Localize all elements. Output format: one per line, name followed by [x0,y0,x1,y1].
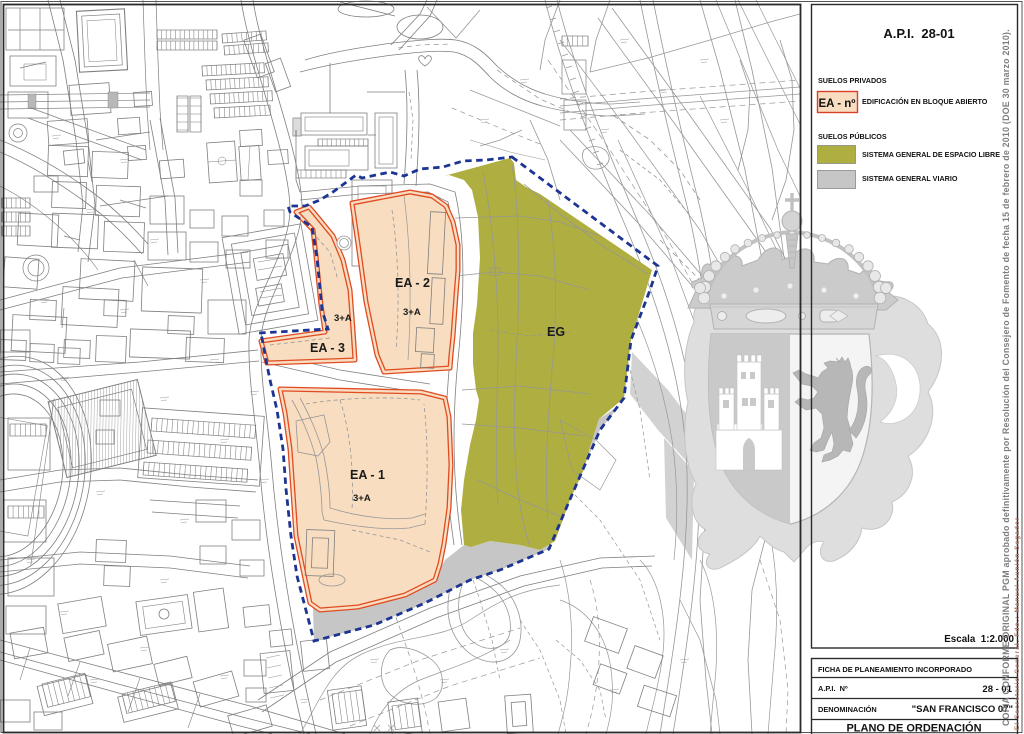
svg-text:3+A: 3+A [353,493,371,504]
svg-text:EDIFICACIÓN EN BLOQUE ABIERTO: EDIFICACIÓN EN BLOQUE ABIERTO [862,97,988,106]
svg-text:El Secretario General. Fdo.: M: El Secretario General. Fdo.: Manuel Auni… [1014,517,1021,731]
svg-text:3+A: 3+A [403,307,421,318]
svg-text:FICHA DE PLANEAMIENTO INCORPOR: FICHA DE PLANEAMIENTO INCORPORADO [818,665,972,674]
svg-text:EG: EG [547,325,565,339]
svg-text:DENOMINACIÓN: DENOMINACIÓN [818,705,877,714]
svg-text:EA - nº: EA - nº [819,98,856,110]
svg-text:3+A: 3+A [334,313,352,324]
svg-text:EA - 3: EA - 3 [310,341,345,355]
svg-text:A.P.I. Nº: A.P.I. Nº [818,684,848,693]
svg-text:SUELOS PÚBLICOS: SUELOS PÚBLICOS [818,132,887,141]
svg-text:SUELOS PRIVADOS: SUELOS PRIVADOS [818,76,887,85]
svg-text:SISTEMA GENERAL VIARIO: SISTEMA GENERAL VIARIO [862,174,958,183]
svg-text:A.P.I. 28-01: A.P.I. 28-01 [883,26,954,41]
svg-text:PLANO DE ORDENACIÓN: PLANO DE ORDENACIÓN [846,722,981,734]
svg-text:EA - 1: EA - 1 [350,468,385,482]
svg-text:EA - 2: EA - 2 [395,276,430,290]
svg-text:"SAN FRANCISCO 07": "SAN FRANCISCO 07" [912,704,1013,715]
svg-text:SISTEMA GENERAL DE ESPACIO LIB: SISTEMA GENERAL DE ESPACIO LIBRE [862,150,1000,159]
svg-text:COPIA CONFORME ORIGINAL PGM a: COPIA CONFORME ORIGINAL PGM aprobado def… [1001,29,1011,726]
